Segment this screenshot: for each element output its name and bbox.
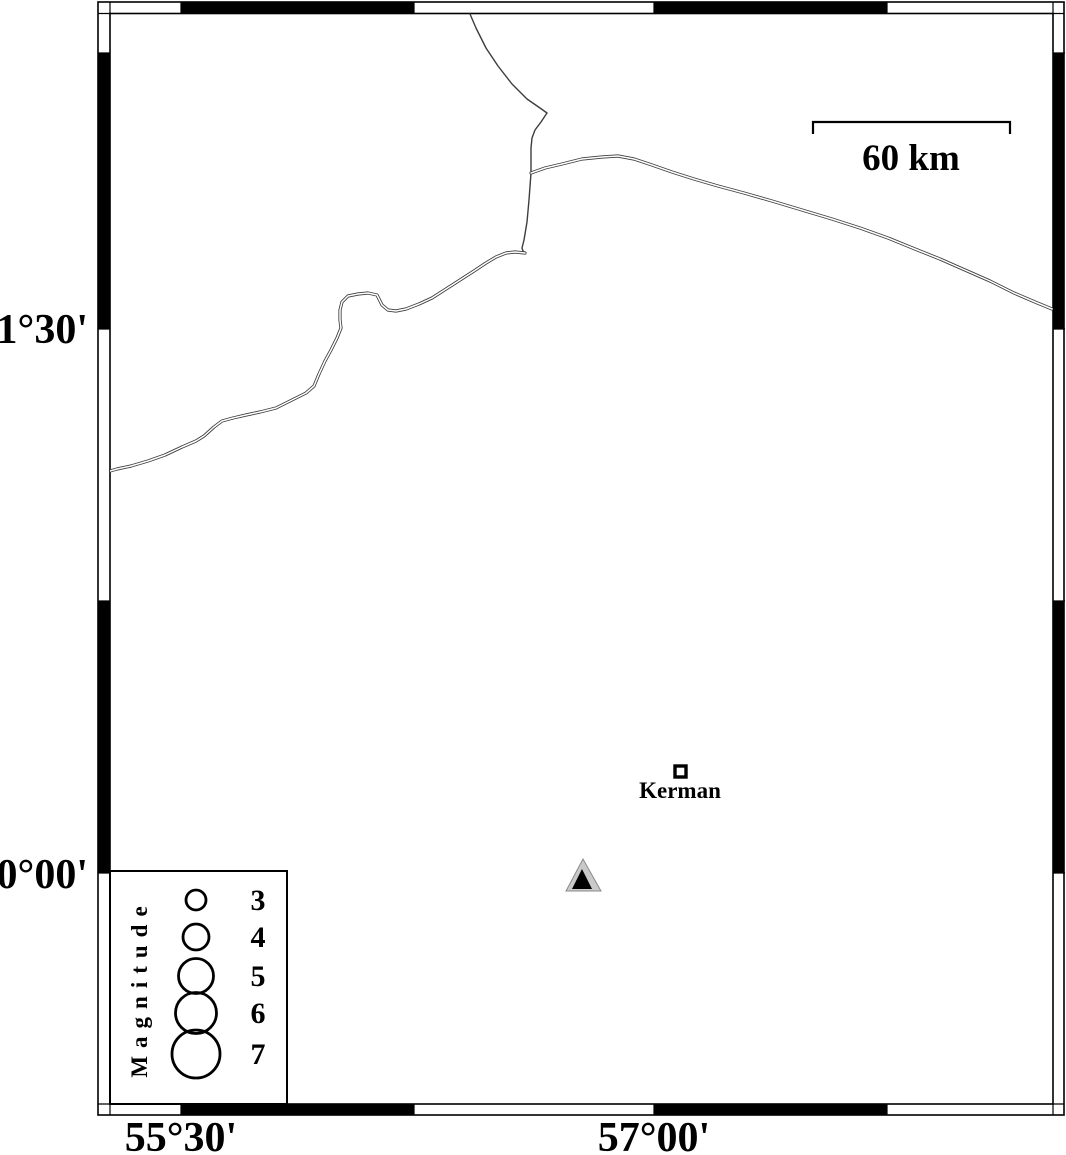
frame-band-left-2 — [99, 601, 111, 873]
frame-band-top-1 — [181, 2, 414, 14]
frame-band-bottom-1 — [181, 1104, 414, 1115]
roads — [110, 14, 1052, 471]
legend-label-4: 4 — [251, 921, 266, 954]
lat-label-lower: 30°00' — [0, 852, 88, 898]
frame-band-bottom-2 — [654, 1104, 887, 1115]
road-line-southwest — [110, 252, 525, 471]
road-line-east-casing — [531, 156, 1052, 309]
scale-bar-label: 60 km — [862, 138, 960, 179]
seismicity-map: 31°30' 30°00' 55°30' 57°00' 60 km Kerman… — [0, 0, 1066, 1155]
legend-title: Magnitude — [127, 898, 152, 1077]
frame-band-right-2 — [1053, 601, 1065, 873]
scale-bar-bracket — [813, 122, 1010, 134]
legend-label-3: 3 — [251, 884, 266, 917]
legend-label-7: 7 — [251, 1038, 266, 1071]
legend-label-5: 5 — [251, 960, 266, 993]
lon-label-right: 57°00' — [598, 1115, 710, 1155]
legend: Magnitude 3 4 5 6 7 — [110, 871, 287, 1104]
road-line-north — [470, 14, 547, 253]
city-marker-kerman: Kerman — [639, 766, 721, 803]
frame-band-left-1 — [99, 53, 111, 329]
road-line-southwest-casing — [110, 252, 525, 471]
station-marker — [566, 859, 601, 891]
city-square-icon — [675, 766, 686, 777]
lat-label-upper: 31°30' — [0, 307, 88, 353]
legend-label-6: 6 — [251, 997, 266, 1030]
scale-bar: 60 km — [813, 122, 1010, 179]
frame-band-top-2 — [654, 2, 887, 14]
frame-band-right-1 — [1053, 53, 1065, 329]
lon-label-left: 55°30' — [125, 1115, 237, 1155]
city-label: Kerman — [639, 778, 721, 803]
road-line-east — [531, 156, 1052, 309]
